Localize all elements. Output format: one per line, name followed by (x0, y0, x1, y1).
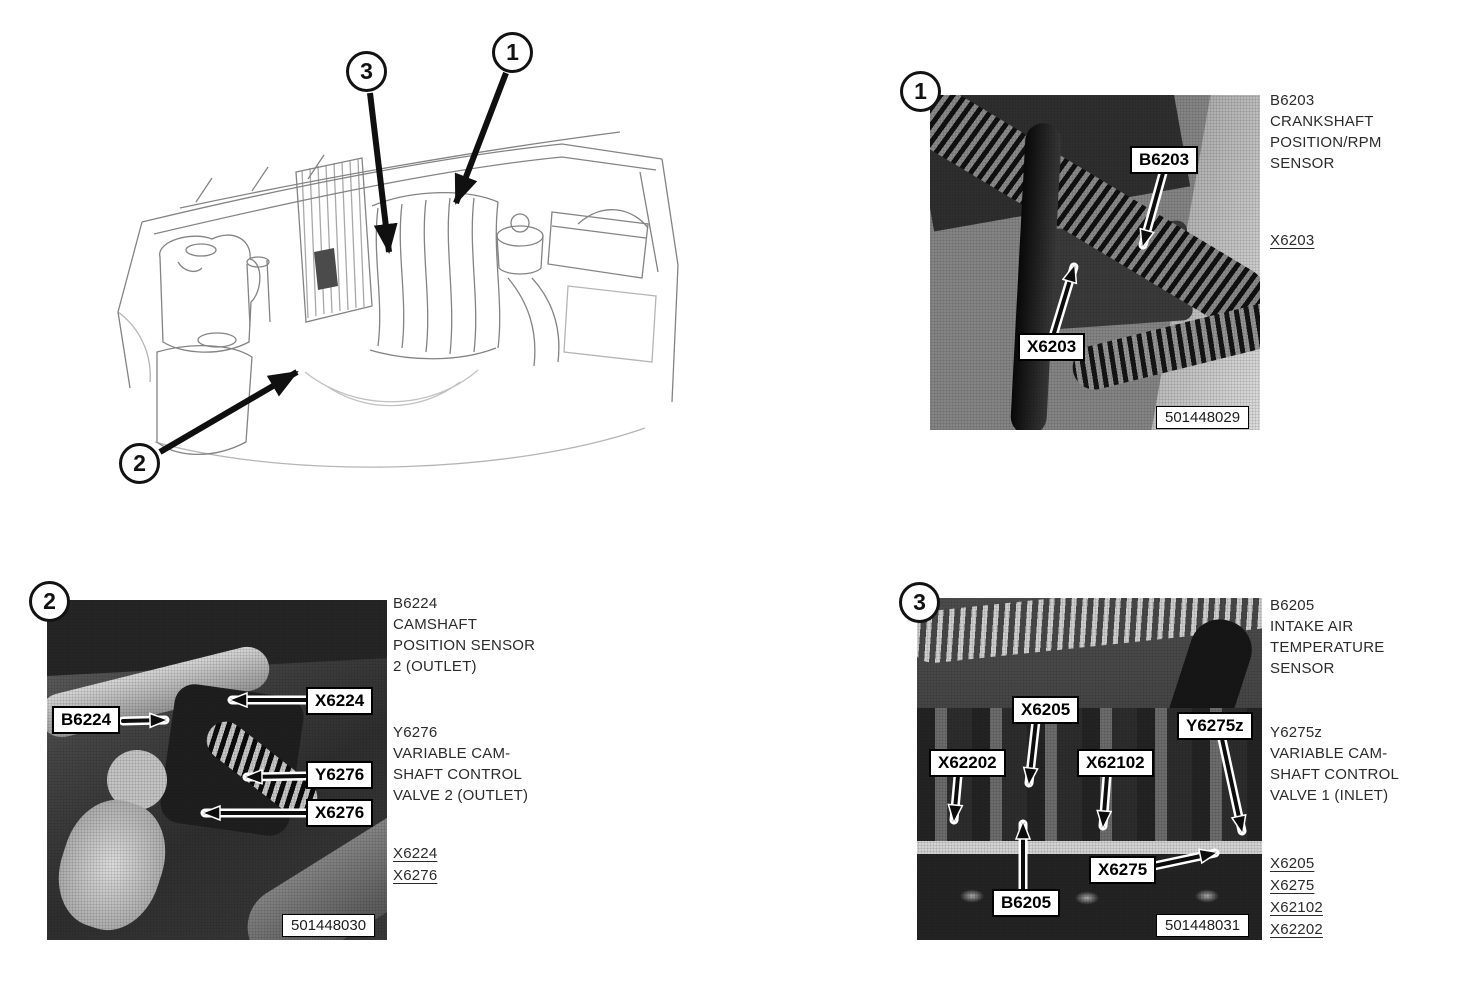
y6276-arrow (247, 776, 306, 777)
desc-line: B6224 (393, 593, 535, 614)
desc-line: TEMPERATURE (1270, 637, 1384, 658)
overview-callout-2-badge: 2 (119, 443, 160, 484)
b6203-arrow (1143, 173, 1163, 245)
overview-callout-3-badge: 3 (346, 51, 387, 92)
b6224-callout-label: B6224 (52, 706, 120, 734)
panel-2-badge: 2 (29, 581, 70, 622)
x6203-callout-label: X6203 (1018, 333, 1085, 361)
panel-3-connector-links: X6205 X6275 X62102 X62202 (1270, 853, 1323, 941)
x62202-callout-label: X62202 (929, 749, 1006, 777)
connector-link-x6224[interactable]: X6224 (393, 843, 437, 865)
panel-1-badge: 1 (900, 71, 941, 112)
desc-line: POSITION SENSOR (393, 635, 535, 656)
desc-line: SENSOR (1270, 658, 1384, 679)
panel-3-badge: 3 (899, 582, 940, 623)
x62102-callout-label: X62102 (1077, 749, 1154, 777)
desc-line: INTAKE AIR (1270, 616, 1384, 637)
connector-link-x6205[interactable]: X6205 (1270, 853, 1323, 875)
overview-callout-1-badge: 1 (492, 32, 533, 73)
y6276-callout-label: Y6276 (306, 761, 373, 789)
desc-line: SHAFT CONTROL (393, 764, 528, 785)
desc-line: SENSOR (1270, 153, 1382, 174)
x6275-callout-label: X6275 (1089, 856, 1156, 884)
desc-line: VARIABLE CAM- (393, 743, 528, 764)
photo2-figure-number: 501448030 (282, 914, 375, 937)
desc-line: VARIABLE CAM- (1270, 743, 1399, 764)
panel-3-description-2: Y6275z VARIABLE CAM- SHAFT CONTROL VALVE… (1270, 722, 1399, 806)
page: 1 2 3 1 B6203 X6203 501448029 B6203 CRAN… (0, 0, 1458, 999)
y6275z-callout-label: Y6275z (1177, 712, 1253, 740)
connector-link-x6203[interactable]: X6203 (1270, 230, 1314, 252)
y6275z-arrow (1222, 739, 1242, 831)
panel-2-description-1: B6224 CAMSHAFT POSITION SENSOR 2 (OUTLET… (393, 593, 535, 677)
panel-3-photo: X6205 Y6275z X62202 X62102 X6275 B6205 5… (917, 598, 1262, 940)
panel-1-photo: B6203 X6203 501448029 (930, 95, 1260, 430)
desc-line: VALVE 2 (OUTLET) (393, 785, 528, 806)
photo3-figure-number: 501448031 (1156, 914, 1249, 937)
arrow-to-1 (456, 73, 506, 203)
b6203-callout-label: B6203 (1130, 146, 1198, 174)
desc-line: B6205 (1270, 595, 1384, 616)
photo1-arrows (930, 95, 1260, 430)
connector-link-x6275[interactable]: X6275 (1270, 875, 1323, 897)
panel-3-description-1: B6205 INTAKE AIR TEMPERATURE SENSOR (1270, 595, 1384, 679)
arrow-to-2 (160, 372, 297, 452)
desc-line: Y6275z (1270, 722, 1399, 743)
x6224-callout-label: X6224 (306, 687, 373, 715)
connector-link-x62202[interactable]: X62202 (1270, 919, 1323, 941)
desc-line: 2 (OUTLET) (393, 656, 535, 677)
desc-line: SHAFT CONTROL (1270, 764, 1399, 785)
panel-2-description-2: Y6276 VARIABLE CAM- SHAFT CONTROL VALVE … (393, 722, 528, 806)
x6276-callout-label: X6276 (306, 799, 373, 827)
x6205-callout-label: X6205 (1012, 696, 1079, 724)
b6205-callout-label: B6205 (992, 889, 1060, 917)
panel-1-connector-links: X6203 (1270, 230, 1314, 252)
photo1-figure-number: 501448029 (1156, 406, 1249, 429)
panel-1-description: B6203 CRANKSHAFT POSITION/RPM SENSOR (1270, 90, 1382, 174)
connector-link-x6276[interactable]: X6276 (393, 865, 437, 887)
engine-bay-sketch (100, 10, 680, 520)
engine-bay-lines (118, 132, 678, 467)
desc-line: B6203 (1270, 90, 1382, 111)
connector-link-x62102[interactable]: X62102 (1270, 897, 1323, 919)
panel-2-photo: B6224 X6224 Y6276 X6276 501448030 (47, 600, 387, 940)
desc-line: Y6276 (393, 722, 528, 743)
desc-line: CAMSHAFT (393, 614, 535, 635)
panel-2-connector-links: X6224 X6276 (393, 843, 437, 887)
desc-line: VALVE 1 (INLET) (1270, 785, 1399, 806)
desc-line: CRANKSHAFT (1270, 111, 1382, 132)
desc-line: POSITION/RPM (1270, 132, 1382, 153)
b6224-arrow (123, 720, 165, 721)
x6203-arrow (1054, 267, 1074, 333)
